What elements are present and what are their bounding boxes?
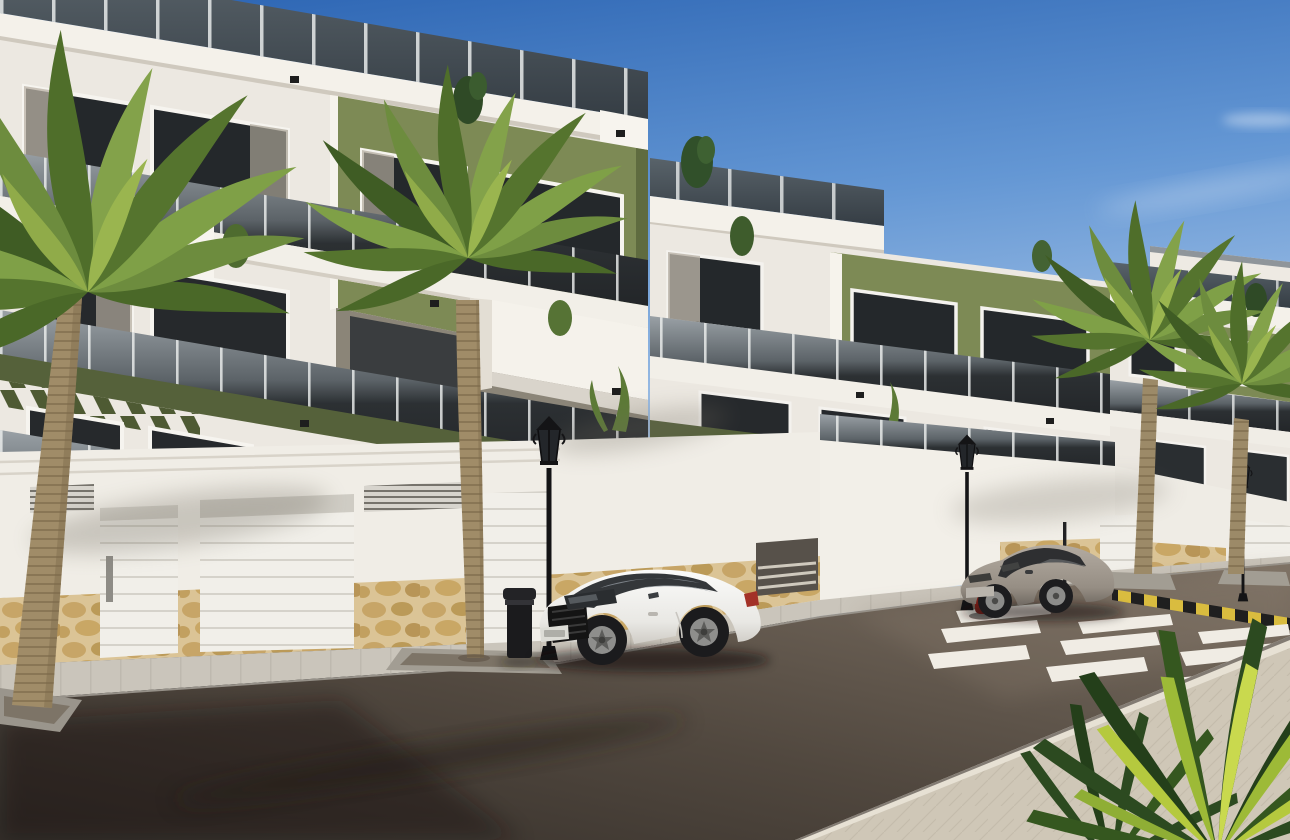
window-curtain	[668, 252, 700, 322]
vent-grille	[364, 482, 462, 512]
door-handle	[106, 556, 113, 602]
planter-island	[1104, 572, 1176, 590]
license-plate	[966, 586, 994, 598]
render-canvas	[0, 0, 1290, 840]
